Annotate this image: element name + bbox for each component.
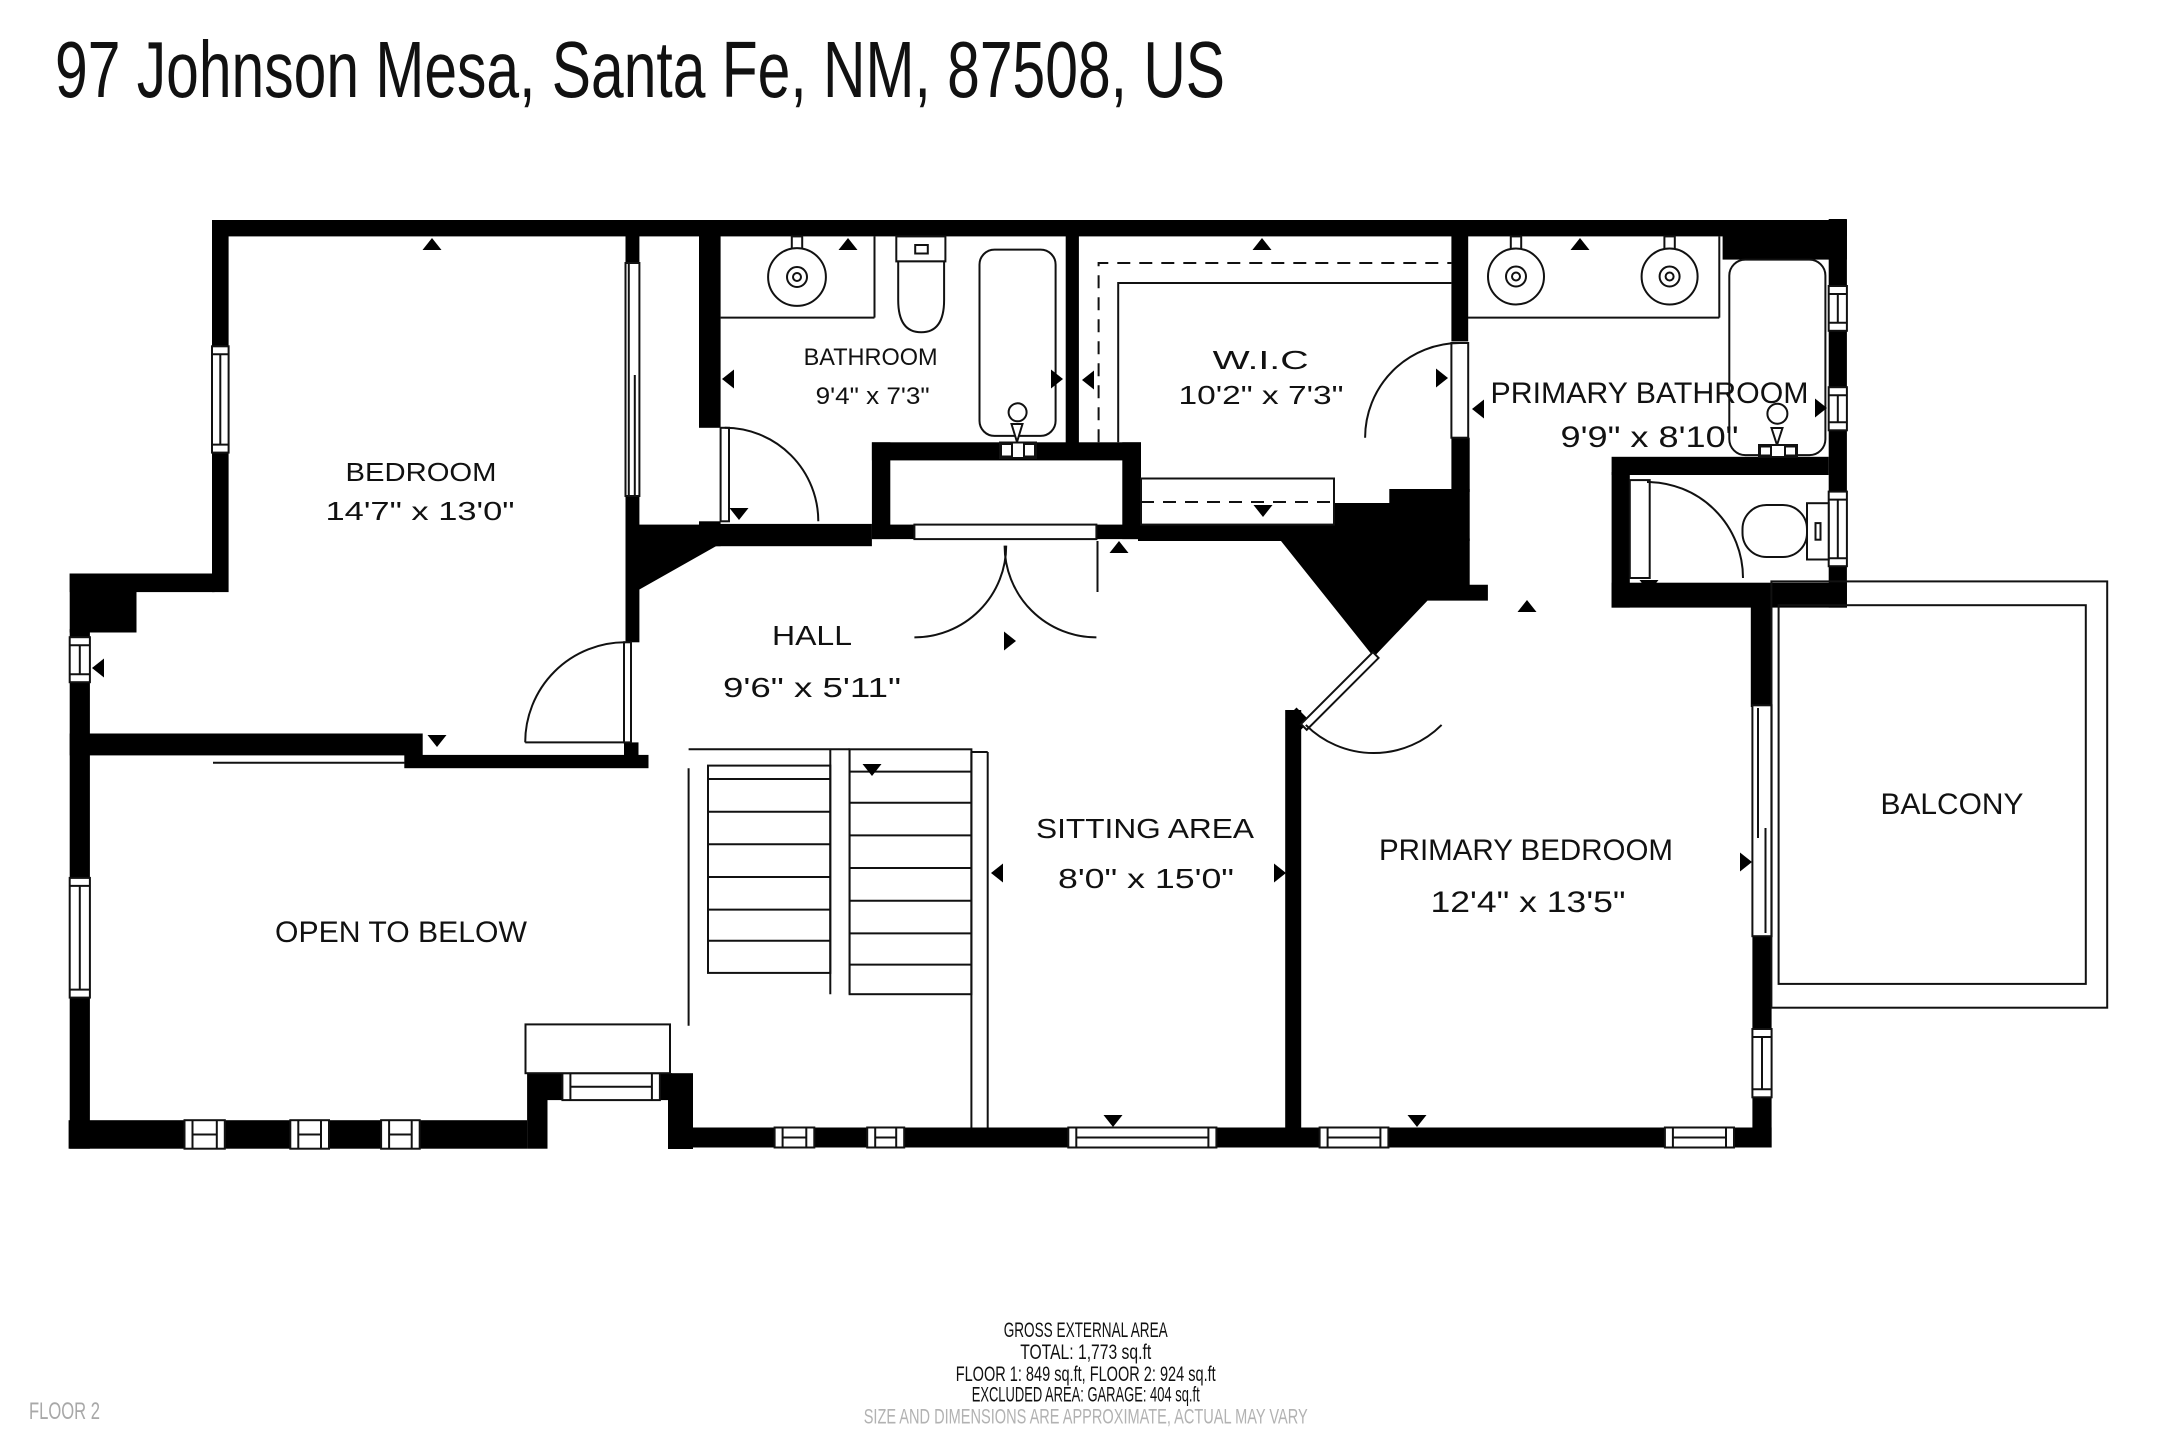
svg-text:9'9" x 8'10": 9'9" x 8'10" bbox=[1561, 421, 1739, 454]
svg-text:8'0" x 15'0": 8'0" x 15'0" bbox=[1058, 863, 1234, 894]
svg-text:FLOOR 2: FLOOR 2 bbox=[29, 1398, 100, 1425]
svg-text:10'2" x 7'3": 10'2" x 7'3" bbox=[1179, 380, 1344, 410]
svg-text:SIZE AND DIMENSIONS ARE APPROX: SIZE AND DIMENSIONS ARE APPROXIMATE, ACT… bbox=[864, 1406, 1308, 1429]
svg-text:14'7" x 13'0": 14'7" x 13'0" bbox=[326, 496, 515, 526]
svg-text:EXCLUDED AREA: GARAGE: 404 sq.: EXCLUDED AREA: GARAGE: 404 sq.ft bbox=[972, 1384, 1200, 1407]
svg-text:9'6" x 5'11": 9'6" x 5'11" bbox=[723, 672, 901, 703]
svg-text:TOTAL: 1,773 sq.ft: TOTAL: 1,773 sq.ft bbox=[1020, 1341, 1151, 1364]
svg-text:W.I.C: W.I.C bbox=[1213, 345, 1309, 375]
svg-text:GROSS EXTERNAL AREA: GROSS EXTERNAL AREA bbox=[1004, 1319, 1168, 1342]
svg-text:9'4" x 7'3": 9'4" x 7'3" bbox=[816, 383, 930, 410]
svg-text:BEDROOM: BEDROOM bbox=[346, 457, 497, 487]
svg-text:SITTING AREA: SITTING AREA bbox=[1036, 813, 1254, 844]
svg-text:BALCONY: BALCONY bbox=[1881, 788, 2024, 821]
svg-text:97 Johnson Mesa, Santa Fe, NM,: 97 Johnson Mesa, Santa Fe, NM, 87508, US bbox=[55, 25, 1225, 114]
svg-text:HALL: HALL bbox=[772, 620, 852, 651]
svg-text:12'4" x 13'5": 12'4" x 13'5" bbox=[1431, 886, 1626, 919]
svg-text:BATHROOM: BATHROOM bbox=[804, 344, 938, 371]
svg-text:PRIMARY BEDROOM: PRIMARY BEDROOM bbox=[1379, 834, 1673, 867]
svg-text:OPEN TO BELOW: OPEN TO BELOW bbox=[275, 916, 528, 949]
svg-text:PRIMARY BATHROOM: PRIMARY BATHROOM bbox=[1491, 377, 1809, 410]
